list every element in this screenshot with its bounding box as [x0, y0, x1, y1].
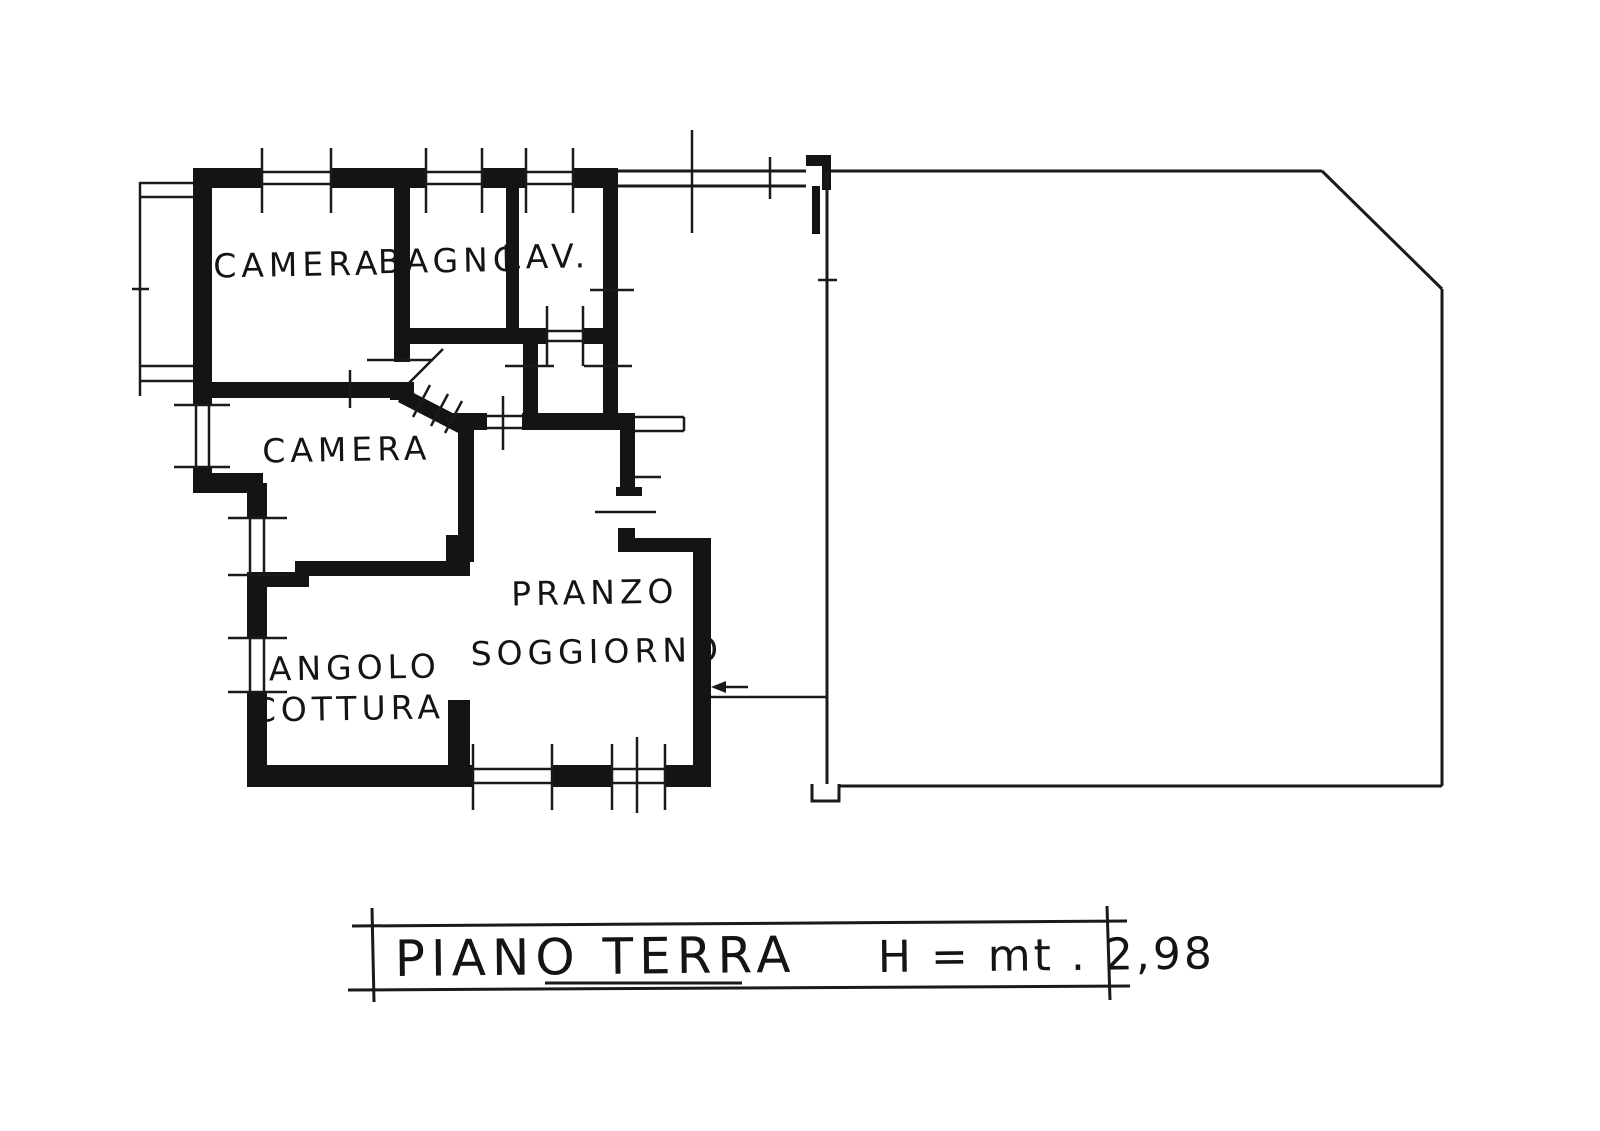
floorplan-sheet: CAMERA BAGNO LAV. CAMERA PRANZO SOGGIORN… — [0, 0, 1600, 1131]
floorplan-drawing: CAMERA BAGNO LAV. CAMERA PRANZO SOGGIORN… — [0, 0, 1600, 1131]
room-label-pranzo: PRANZO — [511, 572, 679, 614]
room-label-angolo: ANGOLO — [268, 647, 441, 689]
room-label-camera-2: CAMERA — [262, 429, 432, 471]
title-height-label: H = mt . 2,98 — [878, 928, 1215, 983]
room-label-camera-1: CAMERA — [213, 244, 383, 286]
terrace-outline — [618, 130, 1442, 801]
room-label-cottura: COTTURA — [252, 687, 445, 729]
title-floor-label: PIANO TERRA — [395, 926, 797, 988]
room-label-lav: LAV. — [501, 236, 590, 277]
title-block: PIANO TERRA H = mt . 2,98 — [348, 906, 1215, 1002]
room-label-soggiorno: SOGGIORNO — [470, 630, 723, 673]
